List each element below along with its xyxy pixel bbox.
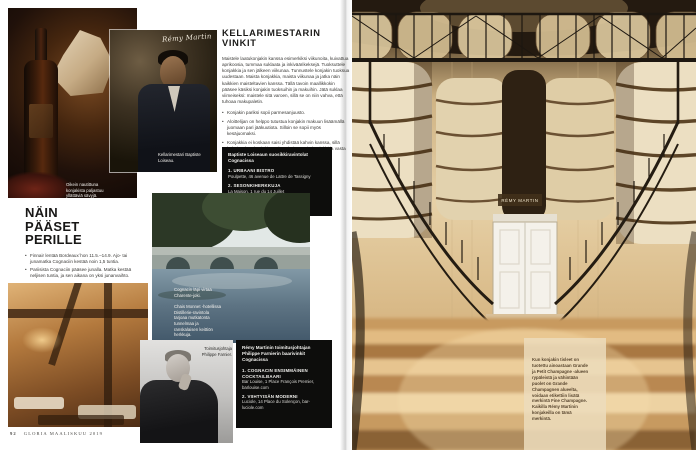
cellar-staircase-photo: RÉMY MARTIN [352,0,696,450]
bars-box-heading: Rémy Martinin toimitusjohtajan Philippe … [242,345,326,364]
directions-section: NÄIN PÄÄSET PERILLE Finnair lentää Borde… [25,206,135,282]
cellar-master-caption: Kellarimestari Baptiste Loiseau. [158,152,214,163]
restaurant-interior-photo [8,283,148,427]
bar-item: 1. COGNACIN ENSIMMÄINEN COCKTAILBAARI Ba… [242,368,326,391]
cellar-illustration: RÉMY MARTIN [352,0,696,450]
tips-bullet: Aloittelijan on helppo tutustua konjakin… [222,119,350,137]
directions-bullet: Pariisista Cognaciin pääsee junalla. Mat… [25,267,135,279]
river-caption: Cognacin läpi virtaa Charente-joki. [174,287,218,298]
bottle-label [29,104,53,138]
large-barrel-left [352,62,432,238]
cellar-master-portrait: Rémy Martin [110,30,217,172]
dining-table [14,397,64,409]
bar-item: 2. VIIHTYISÄN MODERNI Luciole, 14 Place … [242,394,326,412]
ceo-suit [140,380,218,443]
fine-champagne-caption: Kun konjakin tisleet on tuotettu ainoast… [532,357,590,422]
restaurant-item: 1. URBAANI BISTRO Poulpette, 46 avenue d… [228,168,326,180]
tips-heading: KELLARIMESTARIN VINKIT [222,28,350,48]
ceo-caption: Toimitusjohtaja Philippe Farnier. [194,346,232,357]
page-number: 92 [10,431,17,436]
window-glow [22,327,62,353]
barrel-brand-text: RÉMY MARTIN [501,198,538,203]
tips-section: KELLARIMESTARIN VINKIT Maistele laatukon… [222,28,350,161]
bar-label: 1. COGNACIN ENSIMMÄINEN COCKTAILBAARI [242,368,326,380]
bar-detail: Luciole, 14 Place du Solençon, bar-lucio… [242,399,326,411]
tips-bullet: Konjakin pariksi sopii parmesanjuusto. [222,110,350,116]
wood-beam [48,283,82,366]
tips-intro: Maistele laatukonjakin kanssa esimerkiks… [222,56,350,105]
white-double-door [486,214,564,320]
magazine-issue: GLORIA MAALISKUU 2019 [24,431,103,436]
restaurants-box-heading: Baptiste Loiseaun suosikkiravintolat Cog… [228,152,326,164]
bridge-deck [152,247,310,255]
page-gutter [340,0,352,450]
wood-beam [8,309,148,318]
restaurant-detail: Poulpette, 46 avenue de Lattre de Tassig… [228,174,326,180]
bottle-neck [35,28,47,64]
crystal-rock [52,30,114,96]
page-footer: 92 GLORIA MAALISKUU 2019 [10,431,103,436]
inner-barrel-right [542,78,614,220]
chairs-row [38,415,124,425]
bar-detail: Bar Louise, 1 Place François Premier, ba… [242,379,326,391]
bars-box: Rémy Martinin toimitusjohtajan Philippe … [236,340,332,428]
hotel-caption: Chais Monnet -hotellissa Distillerie-rav… [174,304,222,338]
bottle-photo-caption: Oikein nautittuna konjakista paljastuu y… [66,182,112,199]
directions-heading: NÄIN PÄÄSET PERILLE [25,206,111,247]
dried-fruit-plate [8,172,70,198]
magazine-spread: Oikein nautittuna konjakista paljastuu y… [0,0,696,450]
remy-martin-signature: Rémy Martin [162,32,212,43]
directions-bullet: Finnair lentää Bordeaux´hon 11.5.–14.9. … [25,253,135,265]
inner-barrel-left [436,78,508,220]
